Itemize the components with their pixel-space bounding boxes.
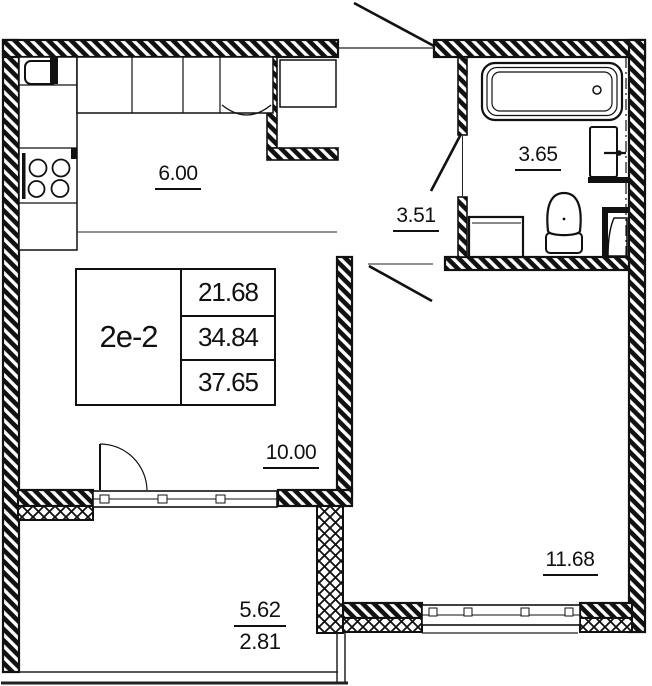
stove-corner-mark: [71, 148, 77, 159]
unit-living-area-cell: 21.68: [182, 270, 274, 315]
insulation-balcony-east-column: [317, 506, 343, 633]
stove-burner: [29, 181, 45, 197]
window-mullion: [158, 495, 167, 503]
insulation-bedroom-bottom-left: [343, 618, 422, 632]
unit-total-area-with-balcony-cell: 37.65: [182, 359, 274, 404]
kitchen-upper-cabinets: [77, 57, 273, 113]
stove-burner: [53, 160, 70, 177]
wall-top-right: [434, 40, 645, 57]
corner-sink-side-bar: [602, 207, 608, 257]
window-mullion: [521, 608, 529, 616]
window-mullion: [216, 495, 225, 503]
stove-burner: [30, 160, 47, 177]
wall-bedroom-bottom-left: [343, 603, 422, 618]
hall-wardrobe: [280, 60, 336, 107]
entry-door-leaf: [354, 3, 434, 46]
kitchen-area-value: 6.00: [155, 163, 200, 190]
bathroom-shelf: [588, 177, 630, 183]
toilet-dot: [563, 218, 566, 221]
wall-hall-niche-horizontal: [267, 148, 338, 160]
bathroom-area-value: 3.65: [515, 144, 560, 171]
kitchen-counter: [19, 57, 77, 250]
balcony-area-full-value: 5.62: [234, 597, 285, 627]
wall-bathroom-west-upper: [458, 57, 467, 135]
unit-id-cell: 2е-2: [77, 270, 182, 404]
bedroom-area-value: 11.68: [543, 549, 598, 576]
wall-living-bottom-right: [278, 490, 352, 506]
stove-burner: [52, 180, 69, 197]
insulation-living-bottom: [18, 506, 93, 520]
wall-left-exterior: [3, 40, 19, 672]
unit-info-table: 2е-2 21.68 34.84 37.65: [75, 268, 276, 406]
wall-bedroom-bottom-right: [580, 603, 632, 618]
toilet-bowl: [547, 193, 580, 235]
corner-sink-basin: [608, 218, 627, 256]
wall-right-exterior: [629, 40, 645, 632]
kitchen-wall-stub: [50, 57, 58, 84]
hallway-area-value: 3.51: [393, 205, 438, 232]
window-mullion: [464, 608, 472, 616]
hallway-area-label: 3.51: [388, 205, 444, 232]
balcony-area-reduced-value: 2.81: [239, 627, 280, 655]
insulation-bedroom-bottom-right: [580, 618, 632, 632]
stove-oven-handle: [22, 153, 26, 199]
kitchen-area-label: 6.00: [146, 163, 210, 190]
bedroom-area-label: 11.68: [538, 549, 602, 576]
balcony-area-label: 5.62 2.81: [226, 597, 294, 655]
wall-bathroom-bottom: [445, 257, 629, 270]
floor-plan: 6.00 3.65 3.51 10.00 11.68 5.62 2.81 2е-…: [0, 0, 652, 686]
window-mullion: [565, 608, 573, 616]
wall-living-bottom-left: [18, 490, 93, 506]
window-mullion: [100, 495, 109, 503]
wall-top-left: [3, 40, 338, 57]
bathroom-area-label: 3.65: [508, 144, 568, 171]
bathroom-door-leaf: [431, 134, 461, 191]
wall-bathroom-west-lower: [458, 197, 467, 257]
living-area-label: 10.00: [258, 442, 324, 469]
balcony-door-swing-arc: [100, 444, 147, 490]
wall-bedroom-west: [337, 257, 352, 496]
towel-cabinet-knob: [616, 150, 622, 156]
bedroom-door-leaf: [369, 266, 432, 301]
window-mullion: [429, 608, 437, 616]
unit-total-area-cell: 34.84: [182, 315, 274, 360]
bathtub-drain: [593, 86, 601, 94]
living-area-value: 10.00: [263, 442, 320, 469]
